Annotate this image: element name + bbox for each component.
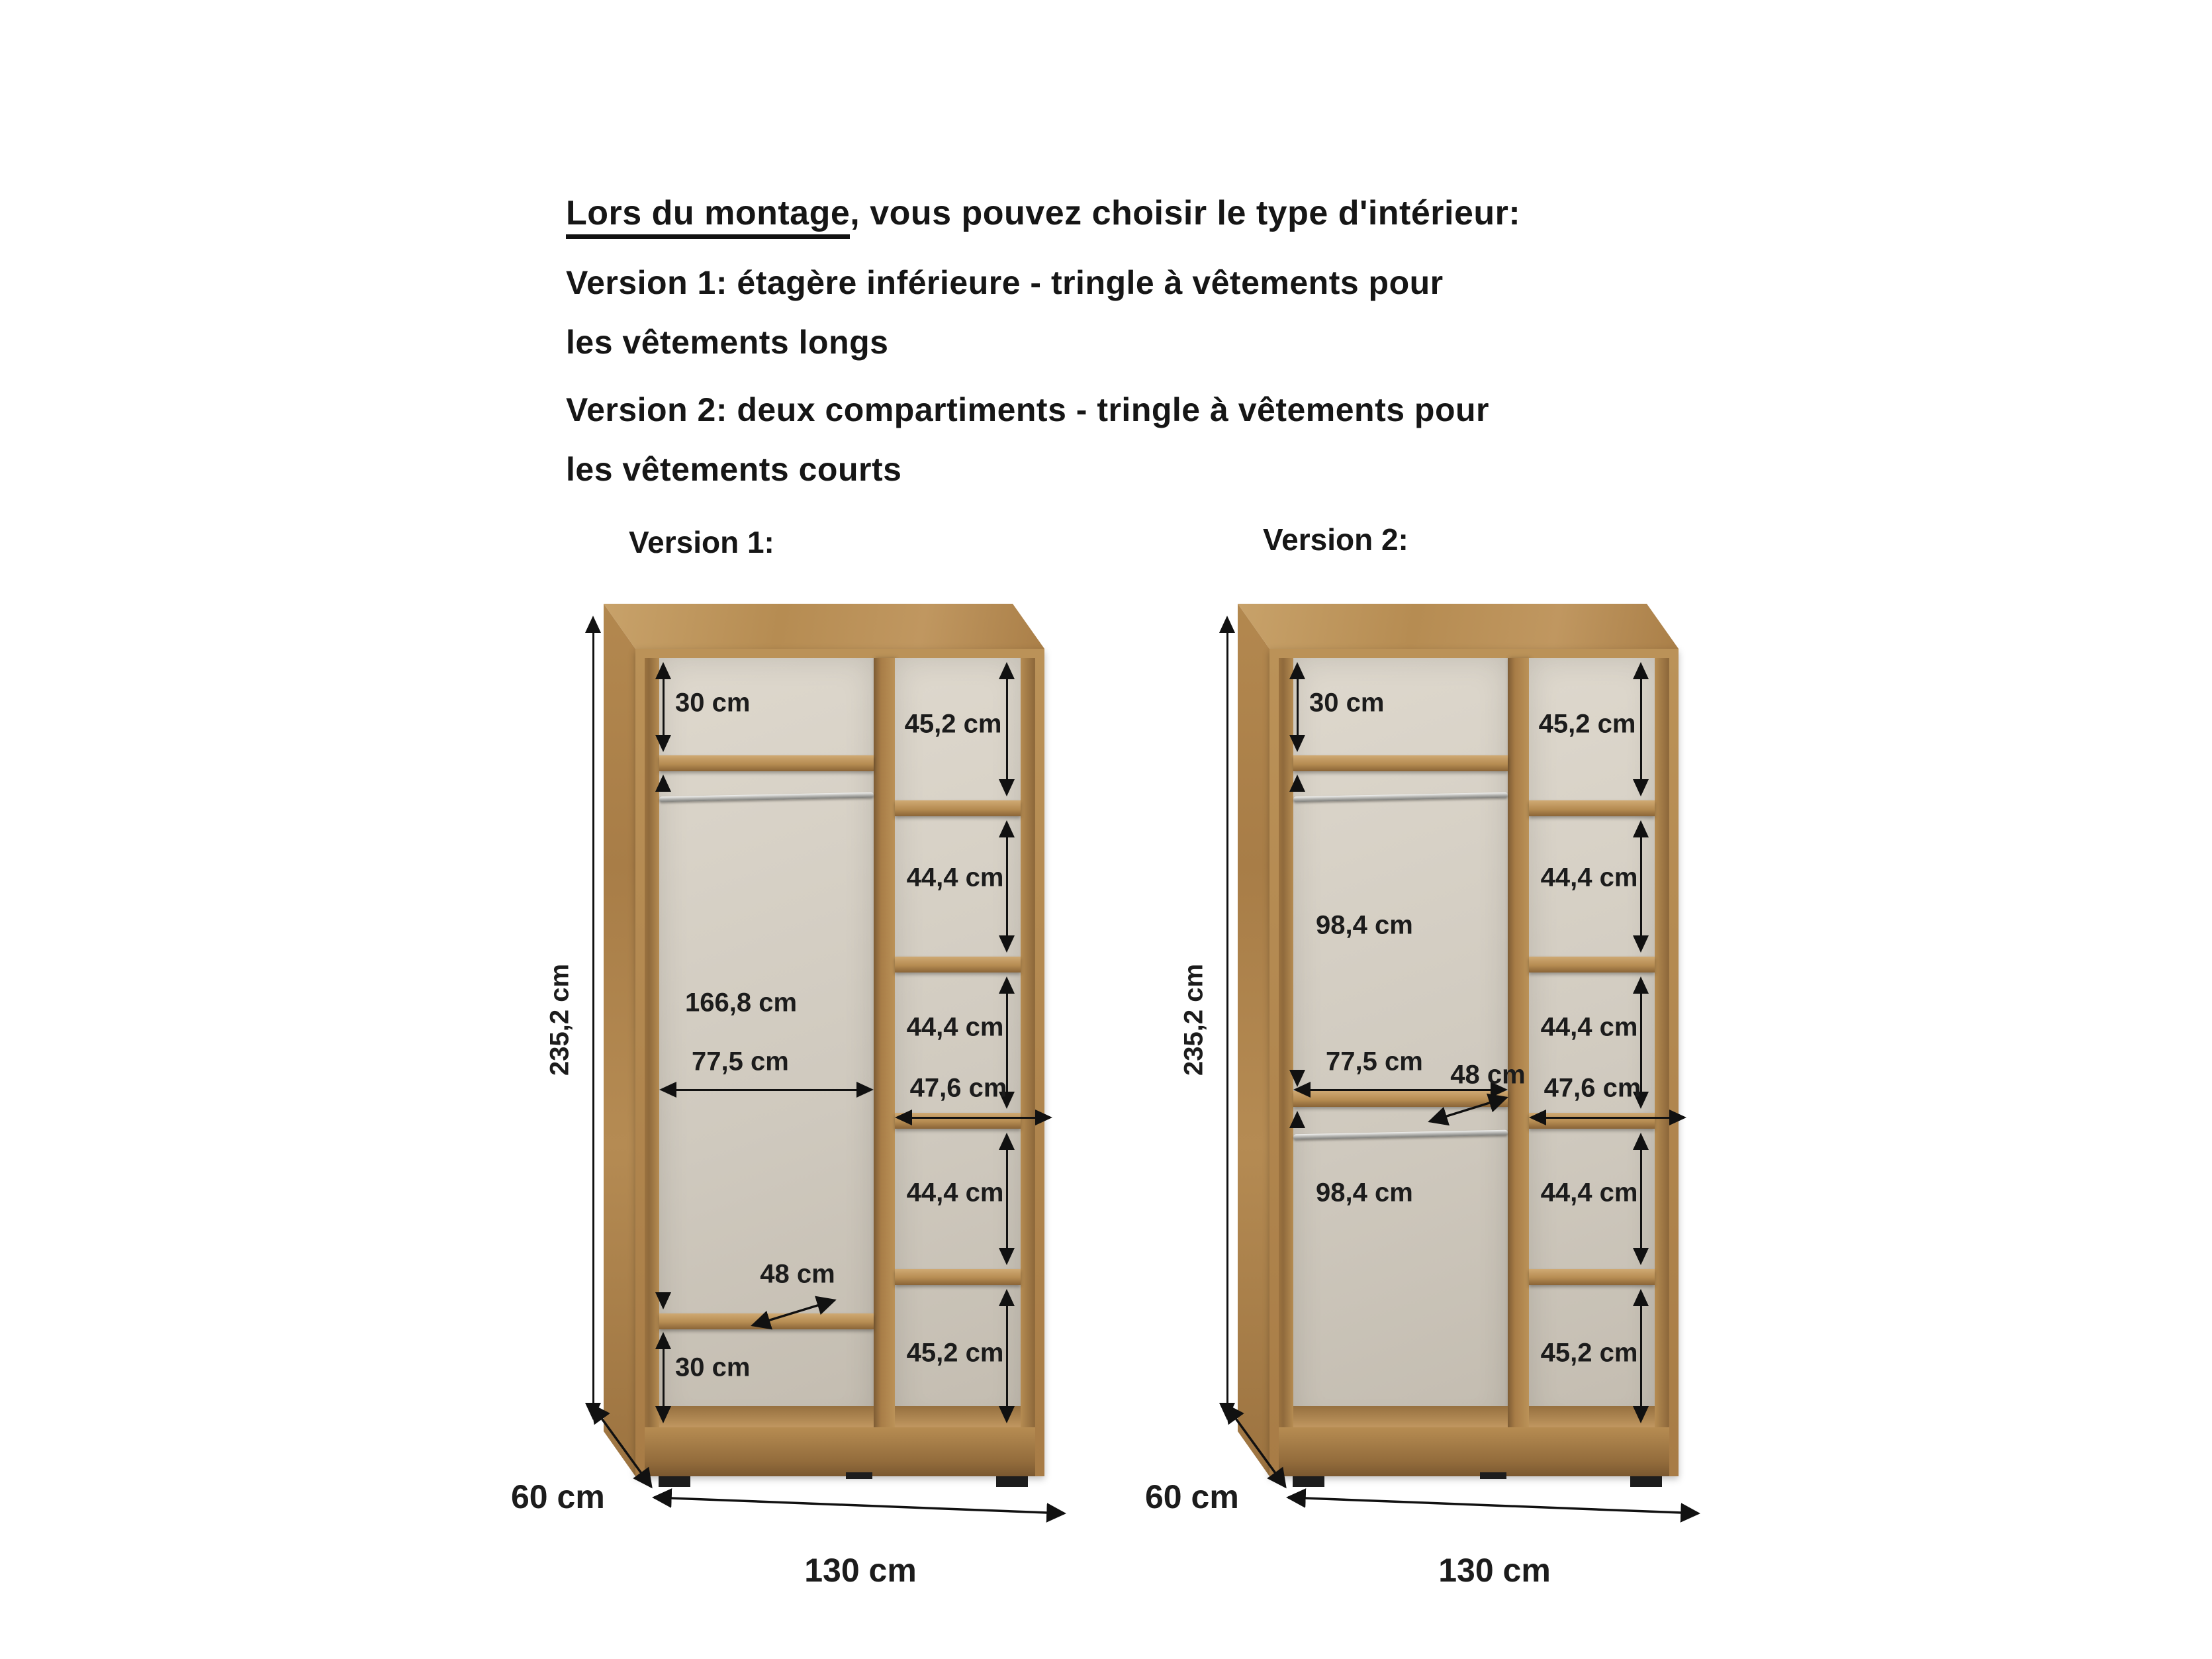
dim-total-height: 235,2 cm: [545, 921, 575, 1119]
bottom-panel: [1293, 1406, 1508, 1427]
shelf: [1529, 1269, 1655, 1285]
shelf: [659, 755, 874, 771]
foot: [996, 1476, 1028, 1487]
dim-right-s3: 44,4 cm: [907, 1013, 1004, 1043]
dim-right-s5: 45,2 cm: [1541, 1339, 1638, 1368]
dim-right-s5: 45,2 cm: [907, 1339, 1004, 1368]
arrow-total-height: [1219, 616, 1235, 1420]
arrow-inner-width-left: [659, 1082, 874, 1098]
arrow-width: [647, 1487, 1074, 1523]
arrowhead-icon: [1289, 1111, 1305, 1128]
arrow-shelf-depth: [1423, 1090, 1516, 1128]
arrow-top-section: [655, 662, 671, 752]
header-line-4: Version 2: deux compartiments - tringle …: [566, 391, 1489, 429]
arrow-inner-width-right: [895, 1110, 1052, 1125]
dim-right-s1: 45,2 cm: [1539, 710, 1636, 739]
dim-depth: 60 cm: [511, 1478, 605, 1516]
arrow-total-height: [585, 616, 601, 1420]
foot: [846, 1472, 872, 1479]
dim-lower-hanging: 98,4 cm: [1316, 1178, 1413, 1208]
arrowhead-icon: [1289, 775, 1305, 792]
header-underlined: Lors du montage: [566, 194, 850, 239]
dim-shelf-depth: 48 cm: [1450, 1061, 1525, 1090]
dim-right-s1: 45,2 cm: [905, 710, 1002, 739]
shelf: [895, 800, 1021, 816]
dim-right-s2: 44,4 cm: [1541, 863, 1638, 893]
bottom-panel: [659, 1406, 874, 1427]
arrow-width: [1281, 1487, 1708, 1523]
shelf: [895, 957, 1021, 972]
shelf: [1529, 800, 1655, 816]
header-line-2: Version 1: étagère inférieure - tringle …: [566, 263, 1444, 302]
right-inner-wall: [1021, 658, 1035, 1427]
shelf: [895, 1269, 1021, 1285]
side-panel: [1238, 604, 1269, 1476]
left-inner-wall: [645, 658, 659, 1427]
arrow-shelf-depth: [745, 1291, 844, 1332]
dim-inner-width-right: 47,6 cm: [910, 1074, 1007, 1104]
dim-right-s4: 44,4 cm: [1541, 1178, 1638, 1208]
side-panel: [604, 604, 635, 1476]
version1-title: Version 1:: [629, 524, 774, 560]
foot: [1480, 1472, 1506, 1479]
shelf: [1529, 957, 1655, 972]
arrowhead-icon: [655, 1292, 671, 1309]
dim-depth: 60 cm: [1145, 1478, 1239, 1516]
dim-hanging-section: 166,8 cm: [685, 988, 797, 1018]
header-line-5: les vêtements courts: [566, 450, 901, 489]
dim-bottom-section: 30 cm: [675, 1353, 750, 1383]
top-face: [604, 604, 1044, 649]
dim-upper-hanging: 98,4 cm: [1316, 911, 1413, 941]
dim-top-section: 30 cm: [675, 688, 750, 718]
header-rest: , vous pouvez choisir le type d'intérieu…: [850, 194, 1520, 232]
version2-title: Version 2:: [1263, 522, 1408, 557]
dim-right-s4: 44,4 cm: [907, 1178, 1004, 1208]
left-column-back: [1293, 658, 1508, 1427]
base-plinth: [1279, 1427, 1669, 1476]
page: Lors du montage, vous pouvez choisir le …: [0, 0, 2212, 1659]
dim-inner-width-left: 77,5 cm: [692, 1047, 789, 1077]
arrow-inner-width-right: [1529, 1110, 1686, 1125]
header-line-3: les vêtements longs: [566, 323, 888, 361]
base-plinth: [645, 1427, 1035, 1476]
center-divider: [1508, 658, 1529, 1427]
dim-total-height: 235,2 cm: [1179, 921, 1209, 1119]
shelf: [1293, 755, 1508, 771]
dim-width: 130 cm: [1438, 1551, 1551, 1589]
dim-width: 130 cm: [804, 1551, 917, 1589]
dim-right-s3: 44,4 cm: [1541, 1013, 1638, 1043]
dim-inner-width-left: 77,5 cm: [1326, 1047, 1423, 1077]
arrow-top-section: [1289, 662, 1305, 752]
dim-inner-width-right: 47,6 cm: [1544, 1074, 1641, 1104]
left-inner-wall: [1279, 658, 1293, 1427]
top-face: [1238, 604, 1679, 649]
dim-right-s2: 44,4 cm: [907, 863, 1004, 893]
foot: [1630, 1476, 1662, 1487]
dim-shelf-depth: 48 cm: [760, 1260, 835, 1290]
arrowhead-icon: [655, 775, 671, 792]
center-divider: [874, 658, 895, 1427]
dim-top-section: 30 cm: [1309, 688, 1384, 718]
right-inner-wall: [1655, 658, 1669, 1427]
header-line-1: Lors du montage, vous pouvez choisir le …: [566, 193, 1520, 233]
